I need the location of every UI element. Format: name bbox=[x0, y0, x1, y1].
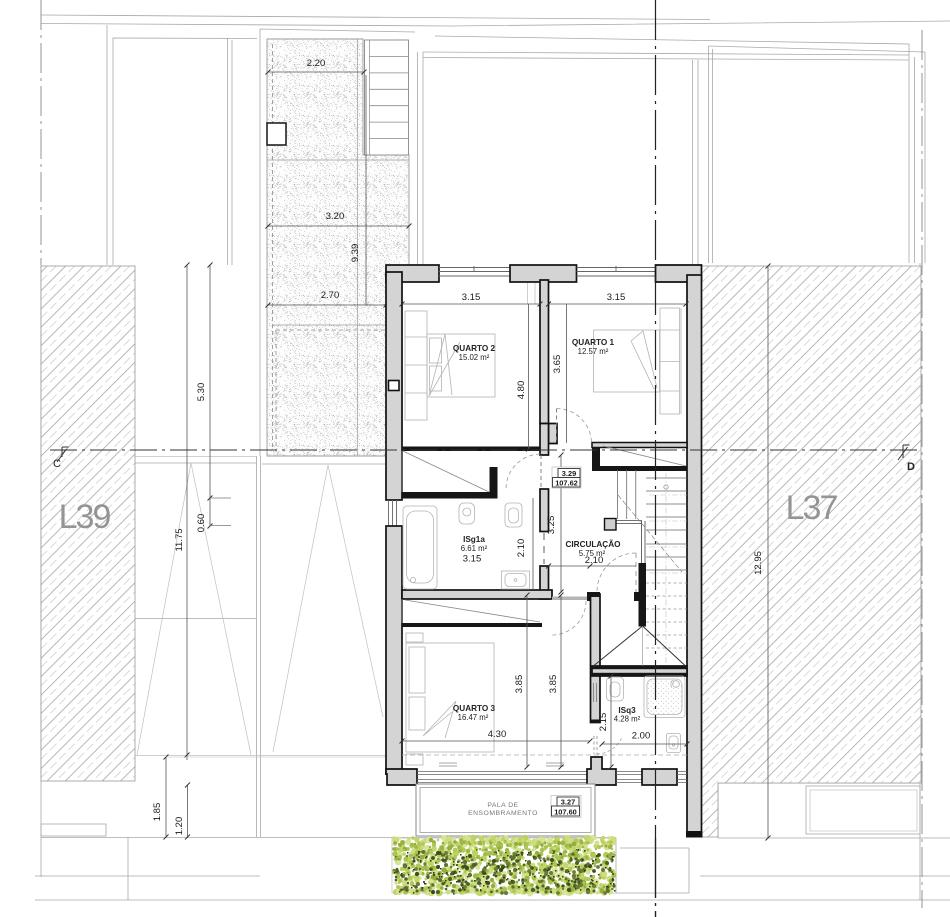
svg-text:2.10: 2.10 bbox=[516, 539, 527, 558]
svg-text:PALA DE: PALA DE bbox=[487, 802, 518, 809]
svg-text:12.95: 12.95 bbox=[753, 551, 764, 575]
svg-text:C: C bbox=[53, 458, 61, 470]
svg-text:3.15: 3.15 bbox=[463, 554, 482, 565]
svg-text:L39: L39 bbox=[59, 498, 111, 536]
svg-text:4.30: 4.30 bbox=[488, 729, 507, 740]
svg-text:12.57 m²: 12.57 m² bbox=[578, 347, 609, 356]
svg-text:QUARTO 3: QUARTO 3 bbox=[453, 704, 496, 713]
svg-text:4.28 m²: 4.28 m² bbox=[614, 715, 641, 724]
svg-text:2.15: 2.15 bbox=[598, 713, 609, 732]
svg-text:QUARTO 1: QUARTO 1 bbox=[572, 338, 615, 347]
svg-text:3.85: 3.85 bbox=[514, 675, 525, 694]
svg-text:QUARTO 2: QUARTO 2 bbox=[453, 344, 496, 353]
svg-text:2.20: 2.20 bbox=[307, 58, 326, 69]
svg-text:3.25: 3.25 bbox=[546, 516, 557, 535]
svg-text:0.60: 0.60 bbox=[196, 514, 207, 533]
svg-text:1.85: 1.85 bbox=[152, 803, 163, 822]
svg-text:15.02 m²: 15.02 m² bbox=[459, 353, 490, 362]
svg-text:11.75: 11.75 bbox=[174, 528, 185, 551]
svg-text:107.62: 107.62 bbox=[555, 479, 578, 488]
svg-text:2.10: 2.10 bbox=[585, 555, 604, 566]
svg-text:3.65: 3.65 bbox=[552, 355, 563, 374]
svg-text:D: D bbox=[907, 461, 915, 473]
svg-text:3.15: 3.15 bbox=[607, 292, 626, 303]
svg-text:3.20: 3.20 bbox=[326, 211, 345, 222]
svg-text:ENSOMBRAMENTO: ENSOMBRAMENTO bbox=[468, 810, 538, 817]
svg-text:L37: L37 bbox=[786, 489, 838, 527]
svg-text:3.27: 3.27 bbox=[561, 798, 575, 807]
svg-text:CIRCULAÇÃO: CIRCULAÇÃO bbox=[565, 539, 621, 549]
svg-text:2.70: 2.70 bbox=[321, 290, 340, 301]
svg-text:5.30: 5.30 bbox=[196, 383, 207, 402]
svg-text:9.39: 9.39 bbox=[350, 244, 361, 263]
svg-text:1.20: 1.20 bbox=[174, 817, 185, 836]
svg-text:6.61 m²: 6.61 m² bbox=[461, 544, 488, 553]
svg-text:107.60: 107.60 bbox=[554, 808, 577, 817]
svg-text:4.80: 4.80 bbox=[516, 381, 527, 400]
svg-text:2.00: 2.00 bbox=[632, 731, 651, 742]
svg-text:3.29: 3.29 bbox=[562, 469, 576, 478]
svg-text:3.15: 3.15 bbox=[462, 292, 481, 303]
svg-text:16.47 m²: 16.47 m² bbox=[458, 713, 489, 722]
svg-text:ISg1a: ISg1a bbox=[463, 535, 485, 544]
svg-text:3.85: 3.85 bbox=[548, 675, 559, 694]
